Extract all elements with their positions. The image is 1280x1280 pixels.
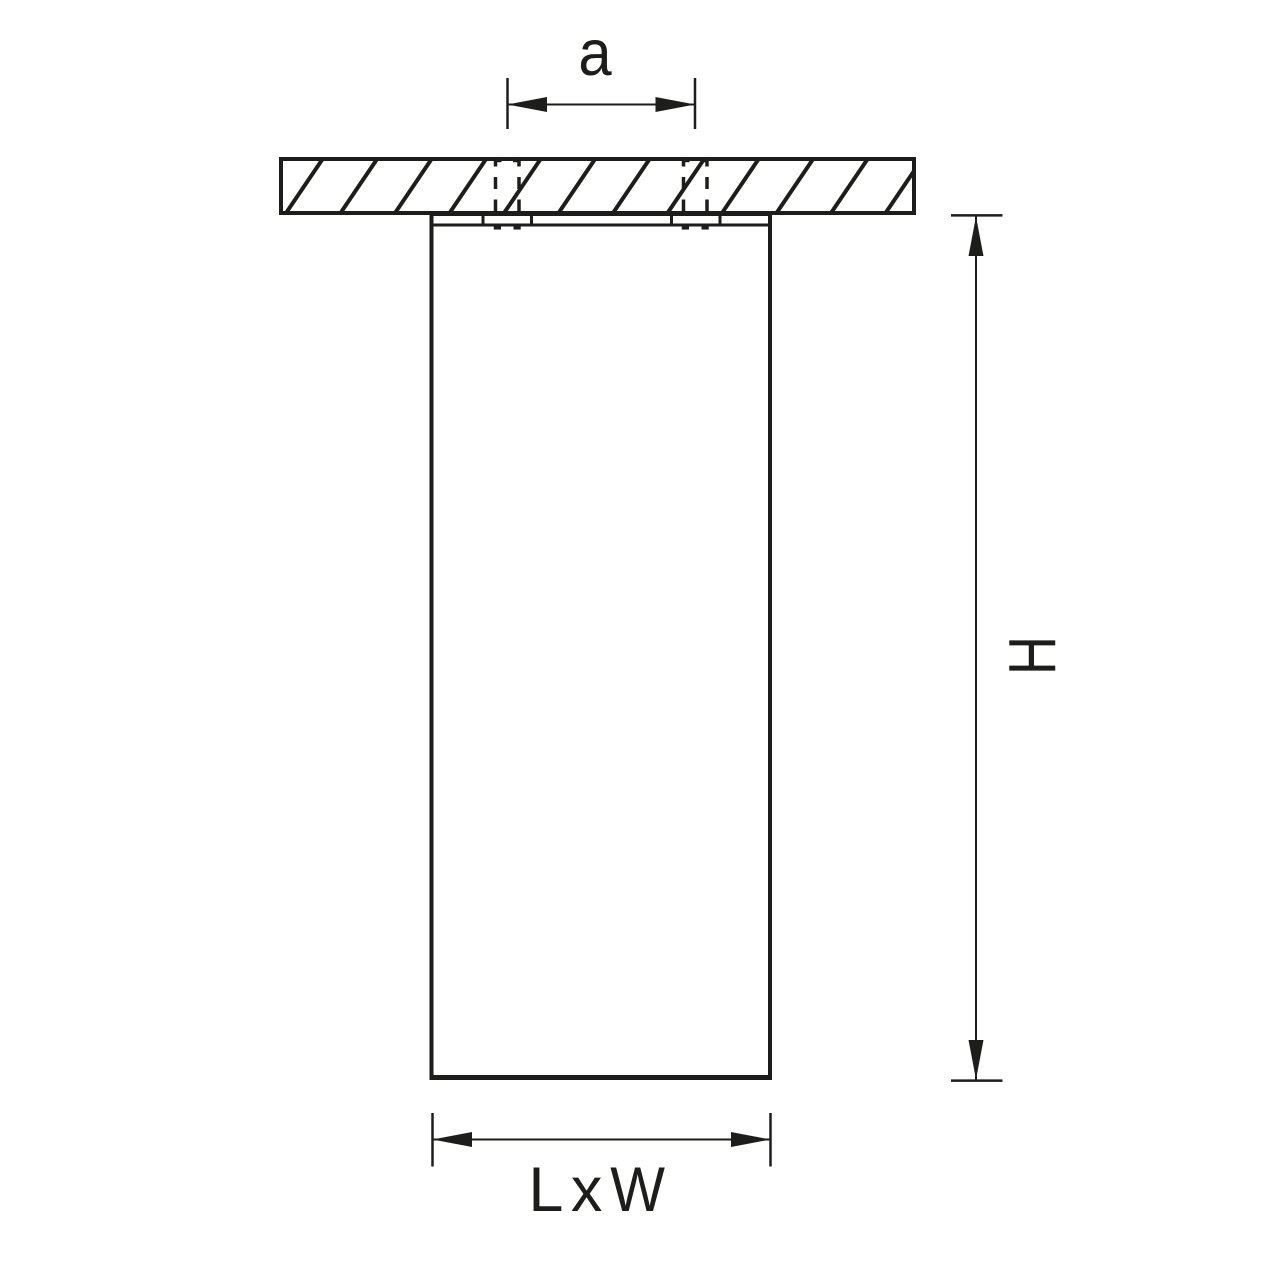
svg-text:x: x [571,1155,603,1225]
svg-text:a: a [578,17,612,90]
svg-text:L: L [528,1155,563,1225]
svg-text:H: H [995,636,1070,675]
svg-text:W: W [610,1154,665,1225]
